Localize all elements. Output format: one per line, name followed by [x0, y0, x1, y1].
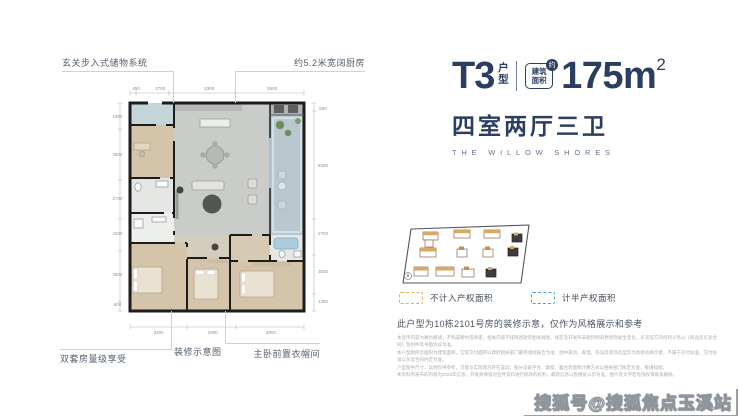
- unit-suffix: 户型: [497, 62, 508, 92]
- site-plan-map: [397, 221, 539, 289]
- dimensions-left: 18003600270022003600600: [113, 103, 122, 311]
- fine-print: 本宣传内容为要约邀请，不构成要约或承诺，相关内容不排除因政府相关规划、规定及开发…: [397, 334, 717, 379]
- annotation-master-closet: 主卧前置衣帽间: [234, 347, 320, 360]
- approx-badge: 约: [546, 59, 558, 71]
- dimension-label: 600: [113, 299, 122, 311]
- legend-swatch-yellow: [399, 292, 423, 304]
- fine-print-line: 本户型图所示面积为建筑面积，实际交付面积以政府相关部门最终测绘报告为准；图中家具…: [397, 349, 717, 364]
- north-arrow-icon: [405, 273, 412, 280]
- plan-caption: 装修示意图: [174, 345, 222, 358]
- leader-line: [235, 71, 365, 72]
- subtitle-en: THE WILLOW SHORES: [452, 148, 665, 157]
- leader-line: [171, 311, 172, 349]
- annotation-wide-kitchen: 约5.2米宽阔厨房: [235, 56, 365, 69]
- dimension-label: 2900: [188, 328, 239, 337]
- dimensions-right: 6008300270030001300: [317, 103, 329, 311]
- site-buildings: [414, 230, 522, 277]
- dimension-label: 3400: [130, 328, 188, 337]
- badge-line2: 面积: [532, 76, 547, 85]
- leader-line: [173, 71, 174, 103]
- annotation-entry-storage: 玄关步入式储物系统: [62, 56, 148, 69]
- dimensions-bottom: 340029004000: [130, 328, 304, 337]
- leader-line: [60, 349, 172, 350]
- poster-page: 450270053005500 340029004000 18003600270…: [0, 0, 740, 416]
- fine-print-line: 户型图中尺寸、比例仅供参考，可能与实际情况存在差异；部分设备平台、飘窗、露台等面…: [397, 364, 717, 371]
- leader-line: [225, 311, 226, 344]
- leader-line: [62, 71, 174, 72]
- dimension-label: 1300: [317, 291, 329, 311]
- annotation-double-suite: 双套房量级享受: [60, 352, 127, 365]
- legend-swatch-blue: [531, 292, 555, 304]
- dimension-label: 3000: [317, 252, 329, 292]
- dimension-label: 600: [317, 103, 329, 115]
- dimension-label: 3600: [113, 130, 122, 179]
- rooms-line: 四室两厅三卫: [452, 107, 665, 141]
- unit-code: T3: [452, 57, 494, 95]
- dimension-label: 5500: [240, 84, 304, 93]
- dimension-label: 4000: [238, 328, 304, 337]
- leader-line: [225, 343, 320, 344]
- watermark: 搜狐号@搜狐焦点玉溪站: [524, 389, 738, 416]
- title-divider: [516, 61, 517, 91]
- fine-print-line: 本资料所发布的内容为2023年信息，开发商保留对宣传资料进行修改的权利，最新信息…: [397, 371, 717, 378]
- disclaimer-headline: 此户型为10栋2101号房的装修示意，仅作为风格展示和参考: [397, 317, 643, 330]
- floor-plan-drawing: [112, 83, 322, 333]
- dimension-label: 8300: [317, 115, 329, 216]
- area-badge: 建筑 面积 约: [525, 63, 553, 89]
- fine-print-line: 本宣传内容为要约邀请，不构成要约或承诺，相关内容不排除因政府相关规划、规定及开发…: [397, 334, 717, 349]
- legend-item-non-property-area: 不计入产权面积: [399, 292, 493, 304]
- dimension-label: 1800: [113, 103, 122, 130]
- leader-line: [235, 71, 236, 103]
- legend: 不计入产权面积 计半产权面积: [399, 292, 654, 304]
- title-block: T3 户型 建筑 面积 约 175m2 四室两厅三卫 THE WILLOW SH…: [452, 56, 665, 157]
- area-value: 175m2: [561, 56, 665, 95]
- dimension-label: 2200: [113, 217, 122, 249]
- dimension-label: 2700: [113, 179, 122, 217]
- dimension-label: 3600: [113, 249, 122, 298]
- legend-item-half-property-area: 计半产权面积: [531, 292, 616, 304]
- dimension-label: 2700: [317, 215, 329, 251]
- dimensions-top: 450270053005500: [130, 84, 304, 93]
- area-exponent: 2: [656, 55, 665, 74]
- badge-line1: 建筑: [532, 67, 547, 76]
- dimension-label: 5300: [178, 84, 240, 93]
- dimension-label: 450: [130, 84, 142, 93]
